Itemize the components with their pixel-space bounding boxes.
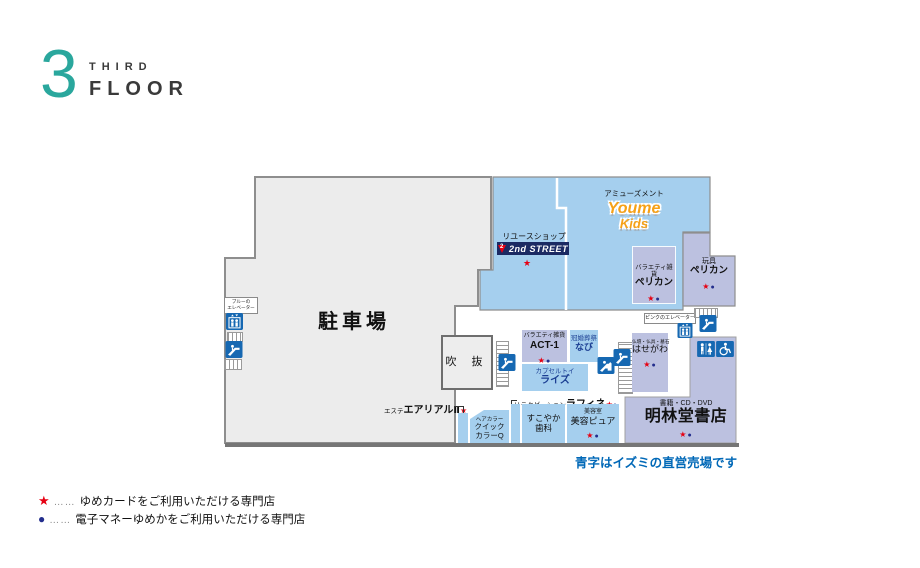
wheelchair-accessible-icon <box>716 341 734 357</box>
second-street-logo: 2 2nd STREET <box>497 242 569 255</box>
second-street-logo-mark-icon: 2 <box>498 245 506 253</box>
store-act1: バラエティ雑貨 ACT-1 ★● <box>522 330 567 362</box>
store-sukoyaka-name-line2: 歯科 <box>522 424 565 434</box>
store-meirindo-category: 書籍・CD・DVD <box>636 400 736 408</box>
parking-label: 駐車場 <box>300 305 408 334</box>
store-hasegawa-markers: ★● <box>632 355 668 371</box>
store-pure-name: 美容ピュア <box>567 416 619 426</box>
escalator-icon <box>225 341 243 358</box>
escalator-icon <box>699 315 717 332</box>
map-shapes <box>0 0 920 568</box>
yumeka-dot-marker: ● <box>655 296 660 303</box>
store-meirindo-markers: ★● <box>636 425 736 441</box>
store-aerial-area <box>458 413 468 443</box>
store-hasegawa: 仏壇・仏具・墓石 はせがわ ★● <box>632 333 668 392</box>
store-second-street-category: リユースショップ <box>494 231 574 242</box>
store-navi-name: なび <box>570 342 598 352</box>
store-pelican-variety-markers: ★● <box>633 289 675 305</box>
blue-elevator-label-line2: エレベーター <box>225 305 257 311</box>
elevator-icon <box>226 313 243 330</box>
store-raffine-area <box>511 404 520 443</box>
yumeka-dot-marker: ● <box>710 284 715 291</box>
store-pelican-toy-markers: ★● <box>683 277 735 293</box>
escalator-icon <box>613 349 631 366</box>
yumeka-dot-marker: ● <box>38 512 45 526</box>
store-pelican-variety: バラエティ雑貨 ペリカン ★● <box>633 247 675 303</box>
atrium-box: 吹 抜 <box>441 335 493 390</box>
store-aerial-category: エステ <box>384 405 404 415</box>
second-street-logo-mark: 2 <box>500 244 503 250</box>
legend-yumeka: ● …… 電子マネーゆめかをご利用いただける専門店 <box>38 511 305 527</box>
yumecard-star-marker: ★ <box>38 493 50 509</box>
legend-leader: …… <box>54 497 76 508</box>
store-rise-name: ライズ <box>522 375 588 387</box>
store-rise: カプセルトイ ライズ <box>522 364 588 391</box>
store-act1-name: ACT-1 <box>522 340 567 352</box>
store-second-street-name: 2nd STREET <box>509 244 568 254</box>
restroom-icon <box>697 341 715 357</box>
legend-yumecard: ★ …… ゆめカードをご利用いただける専門店 <box>38 493 275 509</box>
legend-yumecard-text: ゆめカードをご利用いただける専門店 <box>80 493 276 509</box>
elevator-icon <box>677 323 693 338</box>
escalator-icon <box>597 357 615 374</box>
escalator-hatch <box>224 359 242 370</box>
store-pure-markers: ★● <box>567 426 619 442</box>
store-pelican-toy: 玩具 ペリカン ★● <box>683 258 735 293</box>
store-pelican-variety-category: バラエティ雑貨 <box>633 264 675 278</box>
yumeka-dot-marker: ● <box>687 432 692 439</box>
yumeka-dot-marker: ● <box>594 433 599 440</box>
store-pelican-variety-name: ペリカン <box>633 278 675 289</box>
store-hasegawa-name: はせがわ <box>632 344 668 354</box>
yumeka-dot-marker: ● <box>651 362 656 369</box>
store-sukoyaka: すこやか 歯科 <box>522 404 565 443</box>
store-aerial-name: エアリアルⅡ <box>404 401 461 416</box>
blue-elevator-label: ブルーの エレベーター <box>224 297 258 314</box>
store-pure: 美容室 美容ピュア ★● <box>567 404 619 443</box>
legend-leader: …… <box>49 515 71 526</box>
store-pure-category: 美容室 <box>567 409 619 416</box>
yumecard-star-marker: ★ <box>523 258 531 269</box>
store-quick-color-name-line2: カラーQ <box>470 432 509 441</box>
legend-yumeka-text: 電子マネーゆめかをご利用いただける専門店 <box>75 511 305 527</box>
store-act1-category: バラエティ雑貨 <box>522 333 567 340</box>
youme-kids-logo-line2: Kids <box>606 216 662 231</box>
direct-sales-note: 青字はイズミの直営売場です <box>575 452 737 471</box>
store-pelican-toy-name: ペリカン <box>683 266 735 277</box>
store-meirindo: 書籍・CD・DVD 明林堂書店 ★● <box>636 400 736 441</box>
floor-guide-page: { "header": { "floor_number": "3", "floo… <box>0 0 920 568</box>
store-youme-kids-category: アミューズメント <box>598 188 670 199</box>
store-meirindo-name: 明林堂書店 <box>636 408 736 426</box>
escalator-icon <box>498 354 516 371</box>
store-navi: 冠婚葬祭 なび <box>570 330 598 362</box>
